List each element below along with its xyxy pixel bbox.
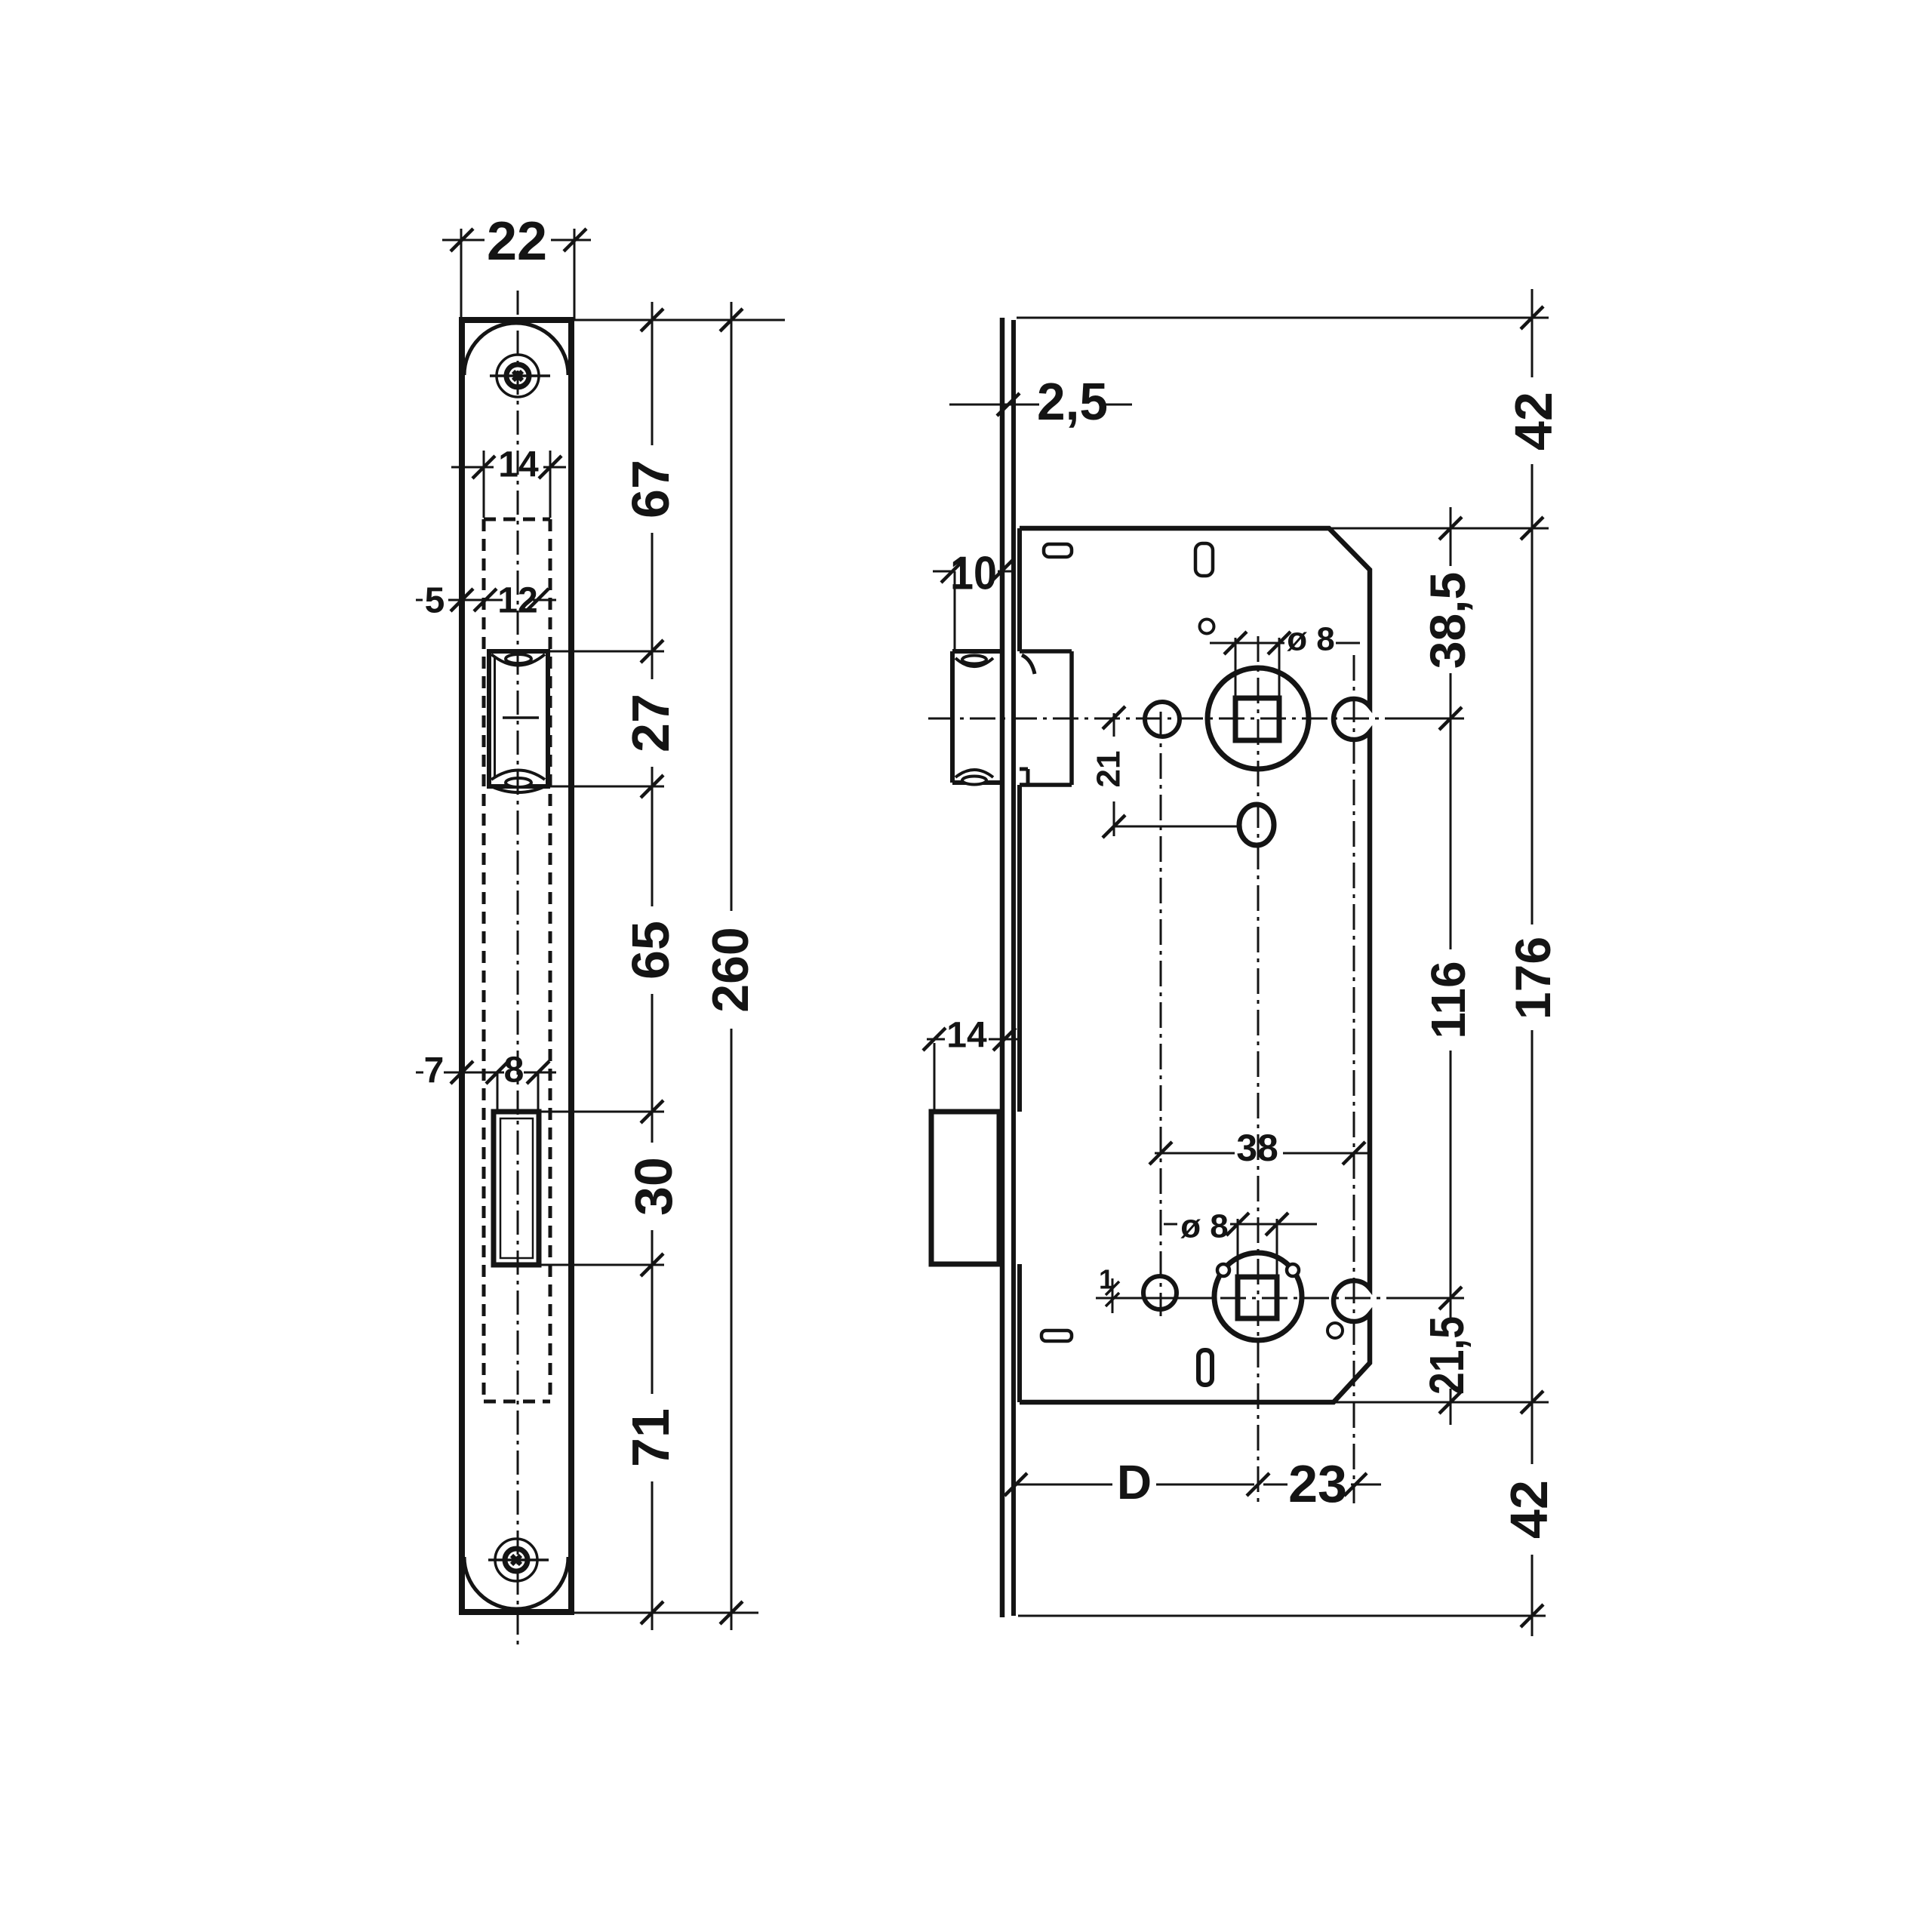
svg-text:14: 14 [498,445,539,485]
svg-text:8: 8 [504,1051,525,1091]
svg-text:65: 65 [621,921,680,980]
svg-text:22: 22 [487,211,547,272]
svg-text:1: 1 [1099,1264,1114,1295]
svg-text:ø 8: ø 8 [1287,621,1335,658]
svg-text:38,5: 38,5 [1420,572,1475,669]
svg-text:14: 14 [946,1016,987,1056]
svg-text:23: 23 [1288,1454,1347,1513]
svg-text:21: 21 [1091,751,1128,788]
svg-text:D: D [1117,1455,1152,1509]
svg-text:21,5: 21,5 [1420,1316,1474,1395]
svg-text:ø 8: ø 8 [1180,1208,1229,1245]
svg-text:27: 27 [621,694,680,752]
svg-text:71: 71 [621,1408,680,1467]
svg-text:176: 176 [1505,937,1561,1020]
svg-text:10: 10 [950,548,997,600]
svg-text:42: 42 [1504,392,1563,451]
svg-text:116: 116 [1421,961,1475,1038]
svg-text:42: 42 [1500,1480,1558,1539]
svg-text:5: 5 [425,581,445,621]
svg-text:12: 12 [497,581,537,621]
svg-text:38: 38 [1236,1127,1278,1169]
svg-text:67: 67 [621,460,680,518]
svg-text:2,5: 2,5 [1037,372,1108,431]
svg-text:30: 30 [624,1157,683,1216]
svg-text:7: 7 [424,1051,445,1091]
svg-text:260: 260 [702,927,759,1012]
